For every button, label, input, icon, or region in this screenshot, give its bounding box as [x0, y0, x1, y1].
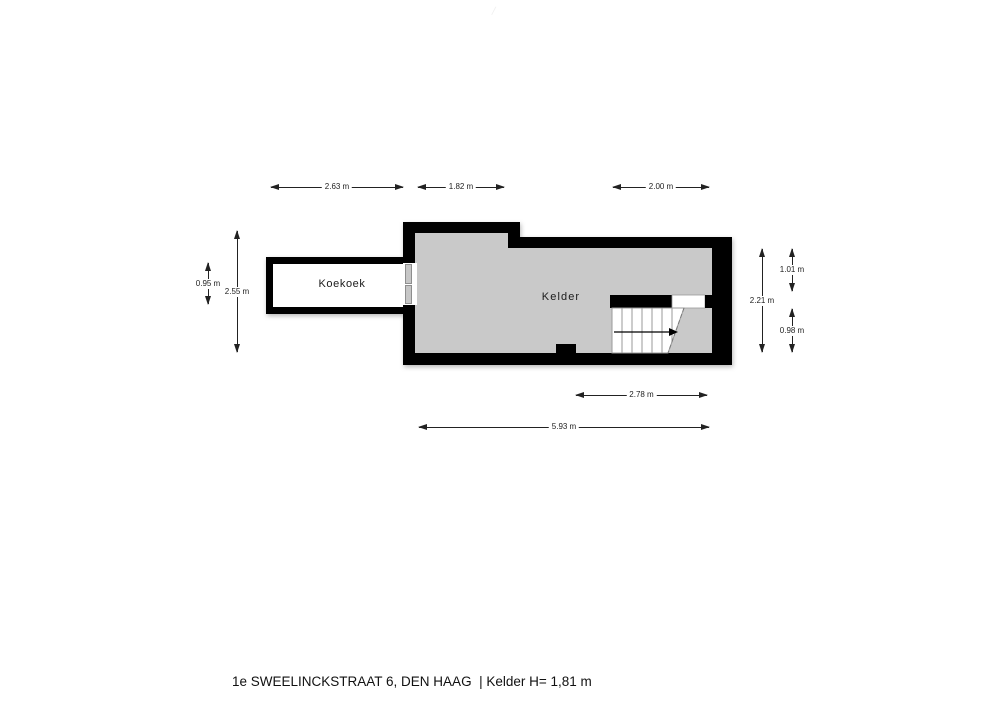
- dim-right-upper-height: 1.01 m: [788, 248, 796, 292]
- dim-top-stairs-width: 2.00 m: [612, 183, 710, 191]
- dim-label: 0.95 m: [193, 279, 223, 289]
- arrowhead-left-icon: [612, 184, 621, 190]
- plan-title: 1e SWEELINCKSTRAAT 6, DEN HAAG | Kelder …: [232, 674, 592, 689]
- dim-right-lower-height: 0.98 m: [788, 308, 796, 353]
- arrowhead-left-icon: [270, 184, 279, 190]
- arrowhead-right-icon: [701, 184, 710, 190]
- dim-label: 2.00 m: [646, 182, 676, 192]
- arrowhead-left-icon: [417, 184, 426, 190]
- dim-label: 5.93 m: [549, 422, 579, 432]
- dim-label: 1.01 m: [777, 265, 807, 275]
- dim-label: 2.55 m: [222, 287, 252, 297]
- dim-bottom-kelder-length: 5.93 m: [418, 423, 710, 431]
- arrowhead-left-icon: [575, 392, 584, 398]
- arrowhead-down-icon: [234, 344, 240, 353]
- arrowhead-down-icon: [789, 344, 795, 353]
- room-label-kelder: Kelder: [542, 291, 580, 303]
- arrowhead-up-icon: [759, 248, 765, 257]
- room-label-koekoek: Koekoek: [318, 278, 365, 290]
- dim-label: 2.78 m: [626, 390, 656, 400]
- dim-top-kelder-left-width: 1.82 m: [417, 183, 505, 191]
- floorplan-canvas: [0, 0, 1000, 707]
- arrowhead-down-icon: [759, 344, 765, 353]
- arrowhead-left-icon: [418, 424, 427, 430]
- dim-right-kelder-height: 2.21 m: [758, 248, 766, 353]
- arrowhead-up-icon: [205, 262, 211, 271]
- stair-wall-stub: [705, 295, 717, 308]
- dim-left-kelder-height: 2.55 m: [233, 230, 241, 353]
- dim-left-koekoek-height: 0.95 m: [204, 262, 212, 305]
- arrowhead-up-icon: [789, 248, 795, 257]
- wall-pier: [556, 344, 576, 354]
- dim-label: 2.63 m: [322, 182, 352, 192]
- dim-label: 0.98 m: [777, 326, 807, 336]
- stair-door-opening: [672, 295, 705, 308]
- dim-top-koekoek-width: 2.63 m: [270, 183, 404, 191]
- dim-bottom-stairs-span: 2.78 m: [575, 391, 708, 399]
- arrowhead-down-icon: [789, 283, 795, 292]
- stair-top-wall: [610, 295, 672, 308]
- arrowhead-up-icon: [789, 308, 795, 317]
- dim-label: 1.82 m: [446, 182, 476, 192]
- staircase: [605, 290, 720, 360]
- arrowhead-right-icon: [496, 184, 505, 190]
- door-leaf-lower: [405, 285, 412, 304]
- arrowhead-right-icon: [701, 424, 710, 430]
- arrowhead-up-icon: [234, 230, 240, 239]
- floorplan-page: { "watermark": "/", "plan": { "rooms": {…: [0, 0, 1000, 707]
- arrowhead-right-icon: [395, 184, 404, 190]
- arrowhead-right-icon: [699, 392, 708, 398]
- dim-label: 2.21 m: [747, 296, 777, 306]
- door-leaf-upper: [405, 264, 412, 284]
- arrowhead-down-icon: [205, 296, 211, 305]
